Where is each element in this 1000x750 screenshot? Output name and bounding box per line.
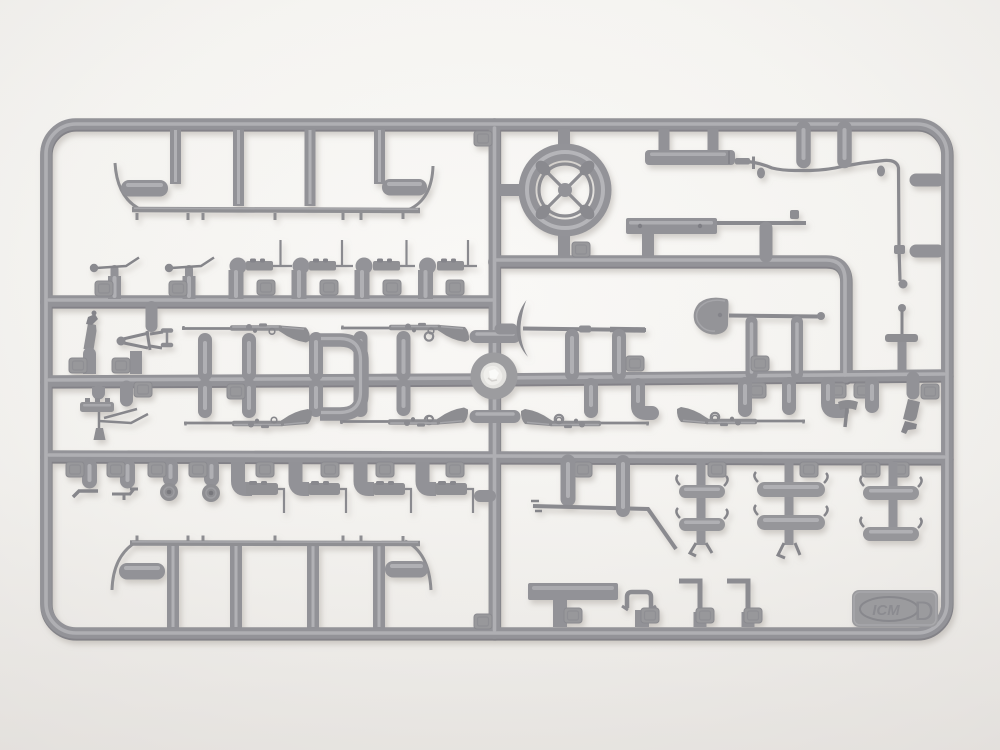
svg-text:ICM: ICM	[872, 602, 900, 619]
svg-text:D: D	[914, 596, 934, 626]
